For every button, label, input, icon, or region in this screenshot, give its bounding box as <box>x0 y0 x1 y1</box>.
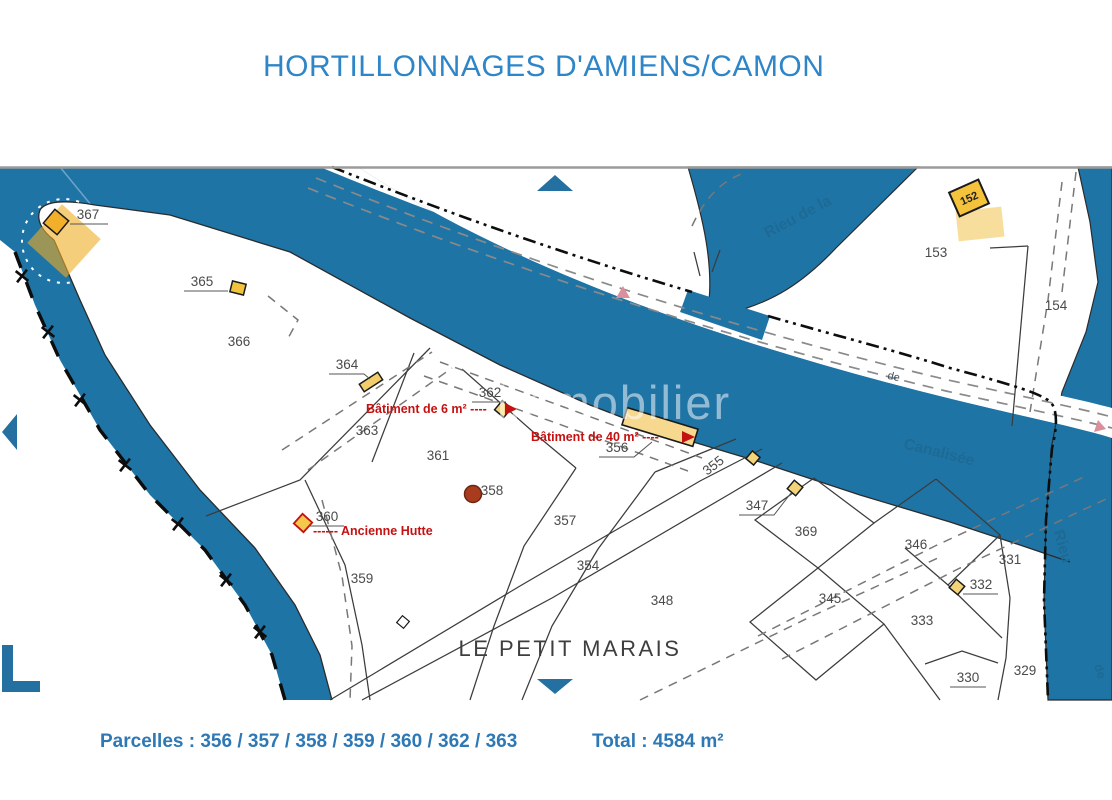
parcel-label-357: 357 <box>554 513 577 528</box>
parcel-label-348: 348 <box>651 593 674 608</box>
cadastral-map-page: HORTILLONNAGES D'AMIENS/CAMON <box>0 0 1112 800</box>
parcel-label-359: 359 <box>351 571 374 586</box>
pan-up-arrow[interactable] <box>537 175 573 191</box>
cadastral-map: immobilier 367 365 366 364 362 363 361 3… <box>0 160 1112 705</box>
building-364-icon <box>359 372 382 392</box>
parcel-label-347: 347 <box>746 498 769 513</box>
parcel-label-354: 354 <box>577 558 600 573</box>
annotation-batiment-6m: Bâtiment de 6 m² ---- <box>366 402 487 416</box>
parcel-label-358: 358 <box>481 483 504 498</box>
building-347-icon <box>787 480 802 495</box>
parcel-label-332: 332 <box>970 577 993 592</box>
water-rieu-branch <box>688 167 918 316</box>
parcel-label-363: 363 <box>356 423 379 438</box>
parcel-label-329: 329 <box>1014 663 1037 678</box>
place-label-le-petit-marais: LE PETIT MARAIS <box>459 636 682 661</box>
pan-left-arrow[interactable] <box>2 414 17 450</box>
pan-down-arrow[interactable] <box>537 679 573 694</box>
parcel-label-154: 154 <box>1045 298 1068 313</box>
parcel-label-360: 360 <box>316 509 339 524</box>
annotation-ancienne-hutte: ------ Ancienne Hutte <box>313 524 433 538</box>
parcel-label-346: 346 <box>905 537 928 552</box>
building-360-icon <box>294 514 312 532</box>
parcel-label-369: 369 <box>795 524 818 539</box>
parcel-label-366: 366 <box>228 334 251 349</box>
building-small-white-icon <box>397 616 410 629</box>
corner-bracket-icon <box>2 645 40 692</box>
parcel-label-153: 153 <box>925 245 948 260</box>
parcel-label-333: 333 <box>911 613 934 628</box>
parcel-label-355: 355 <box>700 453 727 479</box>
parcel-label-331: 331 <box>999 552 1022 567</box>
annotation-batiment-40m: Bâtiment de 40 m² ---- <box>531 430 659 444</box>
parcel-label-365: 365 <box>191 274 214 289</box>
parcel-label-361: 361 <box>427 448 450 463</box>
parcel-label-362: 362 <box>479 385 502 400</box>
parcel-label-367: 367 <box>77 207 100 222</box>
footer-parcelles-list: Parcelles : 356 / 357 / 358 / 359 / 360 … <box>100 731 517 753</box>
footer-total-area: Total : 4584 m² <box>592 731 724 753</box>
parcel-label-345: 345 <box>819 591 842 606</box>
watermark: immobilier <box>497 376 731 429</box>
parcel-label-330: 330 <box>957 670 980 685</box>
building-365-icon <box>230 281 246 295</box>
page-title: HORTILLONNAGES D'AMIENS/CAMON <box>263 50 824 84</box>
parcel-label-364: 364 <box>336 357 359 372</box>
parcel-358-marker <box>465 486 482 503</box>
